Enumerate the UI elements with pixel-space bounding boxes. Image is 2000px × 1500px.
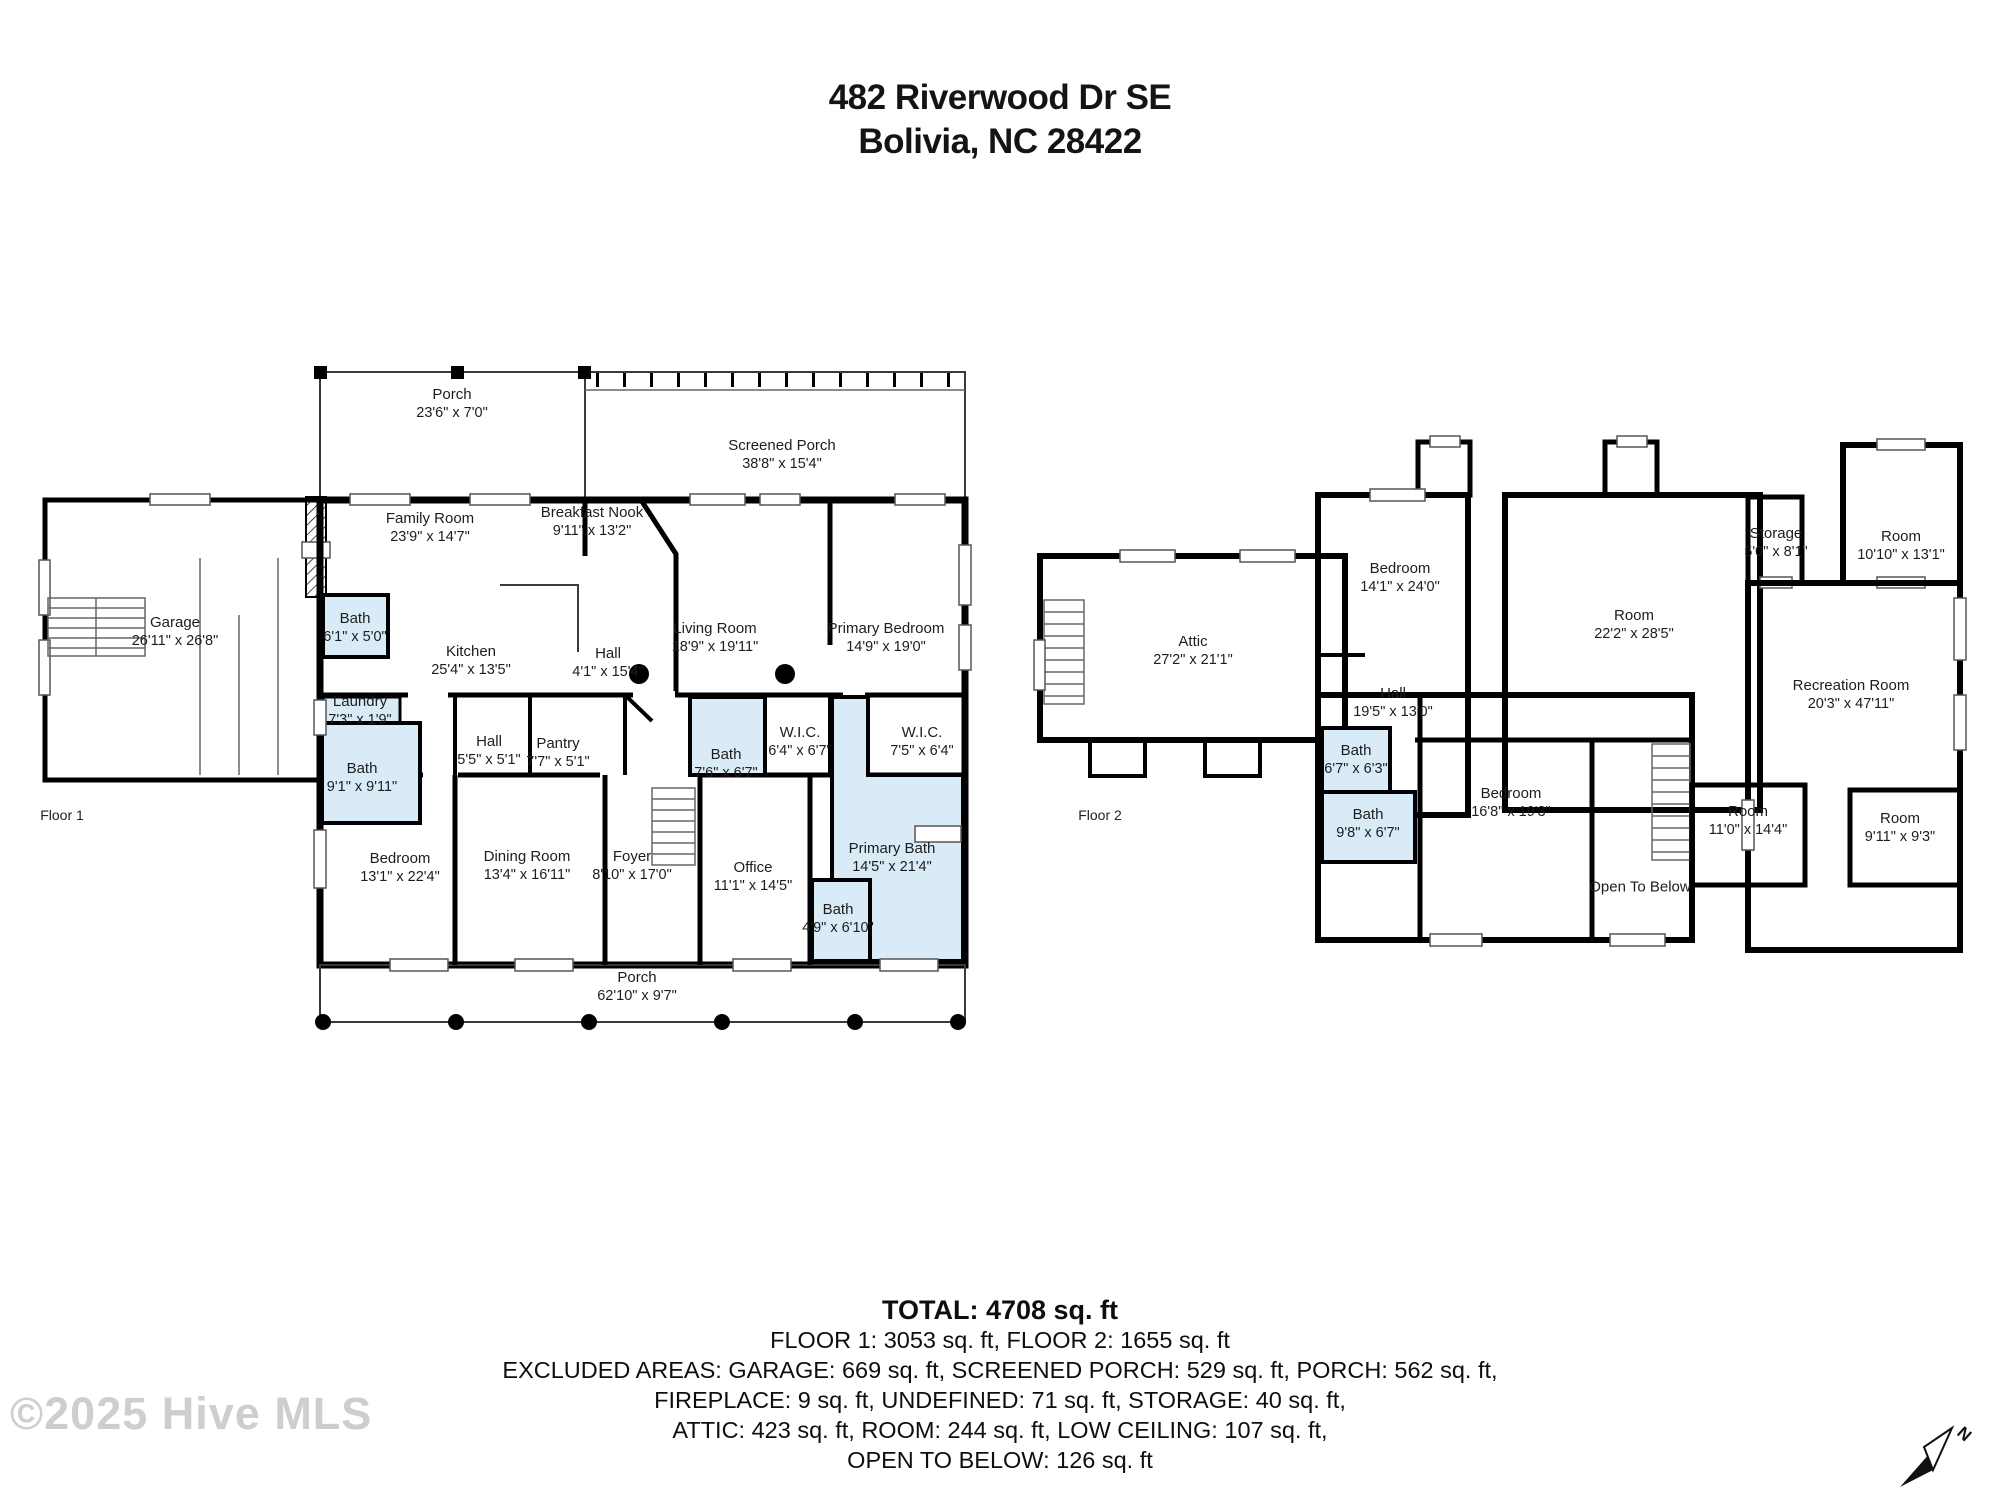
f1-label-bath-2: Bath 7'6" x 6'7"	[694, 745, 757, 783]
f1-label-office: Office 11'1" x 14'5"	[714, 858, 792, 896]
address-line-2: Bolivia, NC 28422	[0, 120, 2000, 164]
f1-label-dining-room: Dining Room 13'4" x 16'11"	[484, 847, 571, 885]
summary-total: TOTAL: 4708 sq. ft	[0, 1294, 2000, 1326]
fireplace-window	[302, 542, 330, 558]
f2-label-room-9: Room 9'11" x 9'3"	[1865, 809, 1935, 847]
f2-label-room-11: Room 11'0" x 14'4"	[1709, 802, 1787, 840]
window	[1954, 598, 1966, 660]
hive-mls-watermark: ©2025 Hive MLS	[10, 1388, 372, 1440]
summary-floors: FLOOR 1: 3053 sq. ft, FLOOR 2: 1655 sq. …	[0, 1326, 2000, 1356]
f1-label-bath-3: Bath 9'1" x 9'11"	[327, 759, 397, 797]
f2-label-bedroom-1: Bedroom 14'1" x 24'0"	[1360, 559, 1440, 597]
f1-label-wic-1: W.I.C. 6'4" x 6'7"	[768, 723, 831, 761]
attic-dormer	[1090, 740, 1145, 776]
f2-label-bath-2: Bath 9'8" x 6'7"	[1336, 805, 1399, 843]
header: 482 Riverwood Dr SE Bolivia, NC 28422	[0, 76, 2000, 164]
f2-label-room-22: Room 22'2" x 28'5"	[1594, 606, 1674, 644]
f1-label-bath-4: Bath 4'9" x 6'10"	[802, 900, 873, 938]
f1-label-garage: Garage 26'11" x 26'8"	[132, 613, 219, 651]
window	[1430, 436, 1460, 447]
attic-dormer	[1205, 740, 1260, 776]
f1-label-family-room: Family Room 23'9" x 14'7"	[386, 509, 474, 547]
f2-label-bedroom-2: Bedroom 16'8" x 19'3"	[1471, 784, 1551, 822]
otb-staircase	[1652, 744, 1690, 860]
column	[775, 664, 795, 684]
f2-label-open-to-below: Open To Below	[1589, 877, 1690, 896]
room22-outline	[1505, 495, 1760, 810]
f1-label-kitchen: Kitchen 25'4" x 13'5"	[431, 642, 511, 680]
address-line-1: 482 Riverwood Dr SE	[0, 76, 2000, 120]
chimney-bump	[1605, 442, 1657, 495]
attic-staircase	[1044, 600, 1084, 704]
f1-label-screened-porch: Screened Porch 38'8" x 15'4"	[728, 436, 836, 474]
wall-nook-bay	[641, 500, 676, 695]
floor2-tag: Floor 2	[1078, 807, 1122, 823]
garage-window	[150, 494, 210, 505]
f1-label-wic-2: W.I.C. 7'5" x 6'4"	[890, 723, 953, 761]
f2-label-attic: Attic 27'2" x 21'1"	[1153, 632, 1233, 670]
f1-label-primary-bedroom: Primary Bedroom 14'9" x 19'0"	[828, 619, 945, 657]
f2-label-storage: Storage 5'0" x 8'1"	[1744, 524, 1807, 562]
f2-label-bath-1: Bath 6'7" x 6'3"	[1324, 741, 1387, 779]
floorplan-page: N 482 Riverwood Dr SE Bolivia, NC 28422 …	[0, 0, 2000, 1500]
f1-label-pantry: Pantry 7'7" x 5'1"	[526, 734, 589, 772]
f1-label-primary-bath: Primary Bath 14'5" x 21'4"	[849, 839, 936, 877]
window	[1877, 439, 1925, 450]
f1-label-bath-1: Bath 6'1" x 5'0"	[323, 609, 386, 647]
f1-label-porch-top: Porch 23'6" x 7'0"	[416, 385, 487, 423]
f1-label-porch-bottom: Porch 62'10" x 9'7"	[597, 968, 677, 1006]
floorplan-drawing: N	[0, 0, 2000, 1500]
window	[1617, 436, 1647, 447]
garage-staircase	[48, 598, 145, 656]
chimney-bump	[1418, 442, 1470, 495]
floor1-tag: Floor 1	[40, 807, 84, 823]
garage-driveway-lines	[200, 558, 278, 775]
f2-label-recreation-room: Recreation Room 20'3" x 47'11"	[1793, 676, 1910, 714]
summary-excluded-1: EXCLUDED AREAS: GARAGE: 669 sq. ft, SCRE…	[0, 1356, 2000, 1386]
f1-label-bedroom: Bedroom 13'1" x 22'4"	[360, 849, 440, 887]
f1-label-breakfast-nook: Breakfast Nook 9'11" x 13'2"	[541, 503, 644, 541]
f2-label-room-10: Room 10'10" x 13'1"	[1857, 527, 1945, 565]
recreation-outline	[1748, 583, 1960, 950]
f2-label-hall: Hall 19'5" x 13'0"	[1353, 684, 1433, 722]
f1-label-laundry: Laundry 7'3" x 1'9"	[328, 692, 391, 730]
kitchen-counter	[500, 585, 578, 652]
f1-label-foyer: Foyer 8'10" x 17'0"	[592, 847, 672, 885]
f1-label-hall-2: Hall 5'5" x 5'1"	[457, 732, 520, 770]
f1-label-living-room: Living Room 18'9" x 19'11"	[672, 619, 759, 657]
summary-excluded-4: OPEN TO BELOW: 126 sq. ft	[0, 1446, 2000, 1476]
f1-label-hall-1: Hall 4'1" x 15'4"	[572, 644, 643, 682]
attic-window	[1034, 640, 1045, 690]
window	[1954, 695, 1966, 750]
